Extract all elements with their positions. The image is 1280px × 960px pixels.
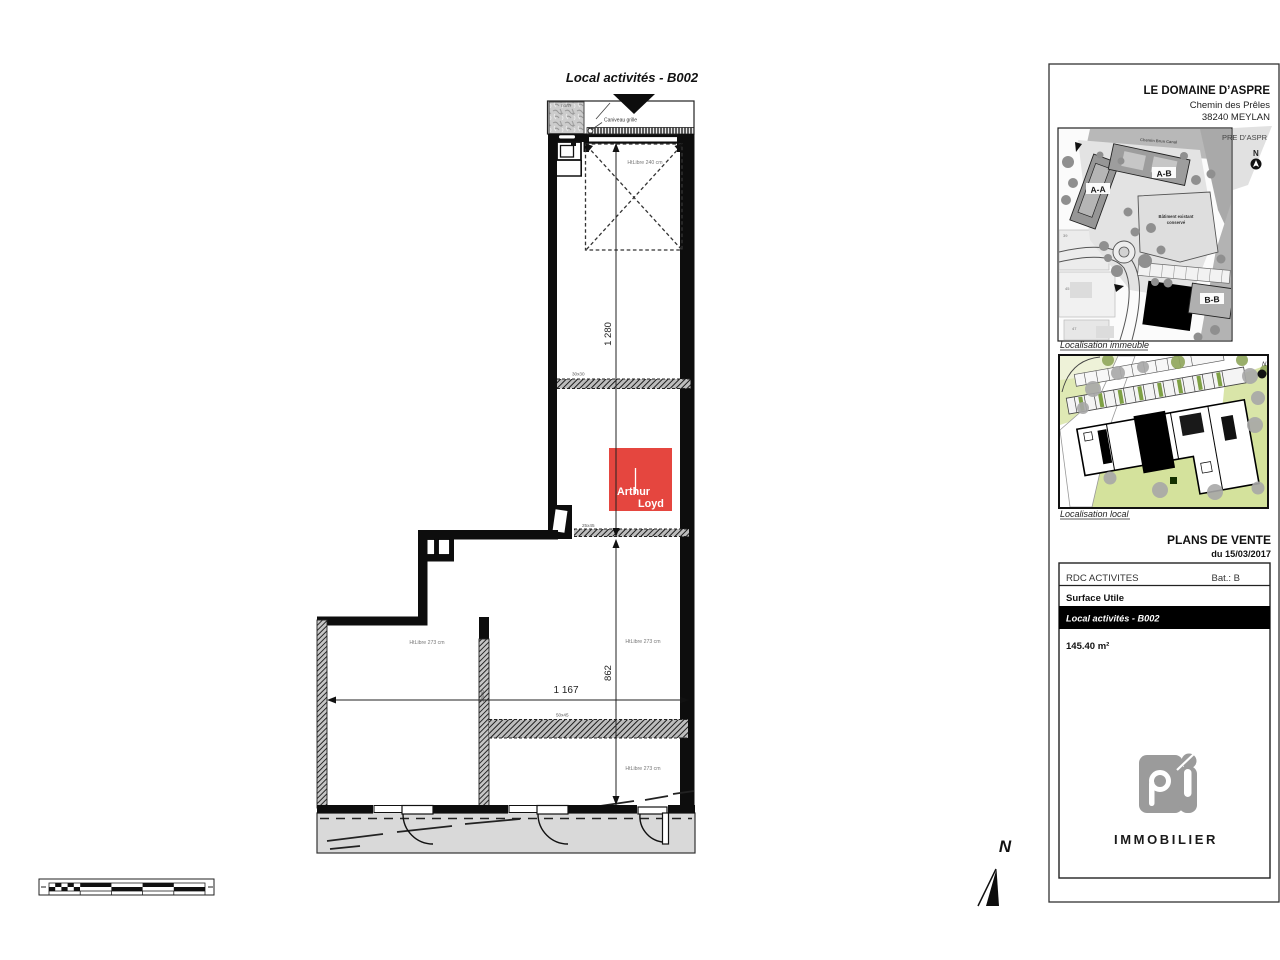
svg-text:conservé: conservé: [1167, 220, 1186, 225]
svg-text:PLANS DE VENTE: PLANS DE VENTE: [1167, 533, 1271, 547]
svg-text:Localisation immeuble: Localisation immeuble: [1060, 340, 1149, 350]
svg-text:Bâtiment existant: Bâtiment existant: [1159, 214, 1195, 219]
svg-text:25x45: 25x45: [582, 523, 595, 528]
svg-text:du 15/03/2017: du 15/03/2017: [1211, 549, 1271, 559]
svg-text:Arthur: Arthur: [617, 486, 651, 498]
svg-text:1 280: 1 280: [603, 322, 614, 346]
svg-text:Localisation local: Localisation local: [1060, 509, 1130, 519]
svg-text:A-B: A-B: [1156, 168, 1172, 179]
svg-text:30x30: 30x30: [572, 372, 585, 377]
svg-text:N: N: [1253, 149, 1259, 158]
svg-text:862: 862: [603, 665, 614, 681]
svg-text:N: N: [999, 837, 1012, 856]
svg-text:HtLibre 273 cm: HtLibre 273 cm: [625, 766, 660, 772]
svg-text:A-A: A-A: [1090, 184, 1106, 195]
svg-text:N: N: [1262, 362, 1267, 368]
svg-text:145.40 m²: 145.40 m²: [1066, 641, 1109, 652]
svg-text:LE DOMAINE D’ASPRE: LE DOMAINE D’ASPRE: [1143, 85, 1270, 97]
svg-text:1 167: 1 167: [553, 685, 578, 696]
svg-text:B-B: B-B: [1204, 294, 1220, 305]
svg-text:HtLibre 273 cm: HtLibre 273 cm: [409, 640, 444, 646]
svg-text:RDC ACTIVITES: RDC ACTIVITES: [1066, 573, 1139, 584]
svg-text:47: 47: [1072, 326, 1077, 331]
svg-text:Local activités - B002: Local activités - B002: [1066, 614, 1160, 624]
svg-text:38240 MEYLAN: 38240 MEYLAN: [1202, 112, 1270, 123]
svg-text:50x45: 50x45: [556, 713, 569, 718]
svg-text:HtLibre 273 cm: HtLibre 273 cm: [625, 639, 660, 645]
svg-text:Bat.: B: Bat.: B: [1211, 573, 1240, 584]
svg-text:Surface Utile: Surface Utile: [1066, 593, 1124, 604]
svg-text:IMMOBILIER: IMMOBILIER: [1114, 832, 1218, 847]
svg-text:PRE D’ASPR: PRE D’ASPR: [1222, 133, 1268, 142]
svg-text:Chemin des Prêles: Chemin des Prêles: [1190, 100, 1271, 111]
svg-text:HtLibre 240 cm: HtLibre 240 cm: [627, 160, 662, 166]
svg-text:Caniveau grille: Caniveau grille: [604, 118, 637, 124]
svg-text:39: 39: [1063, 233, 1068, 238]
svg-text:45: 45: [1065, 286, 1070, 291]
svg-text:Local activités - B002: Local activités - B002: [566, 70, 699, 85]
svg-text:TGBT: TGBT: [561, 103, 572, 108]
svg-text:Loyd: Loyd: [638, 498, 664, 510]
